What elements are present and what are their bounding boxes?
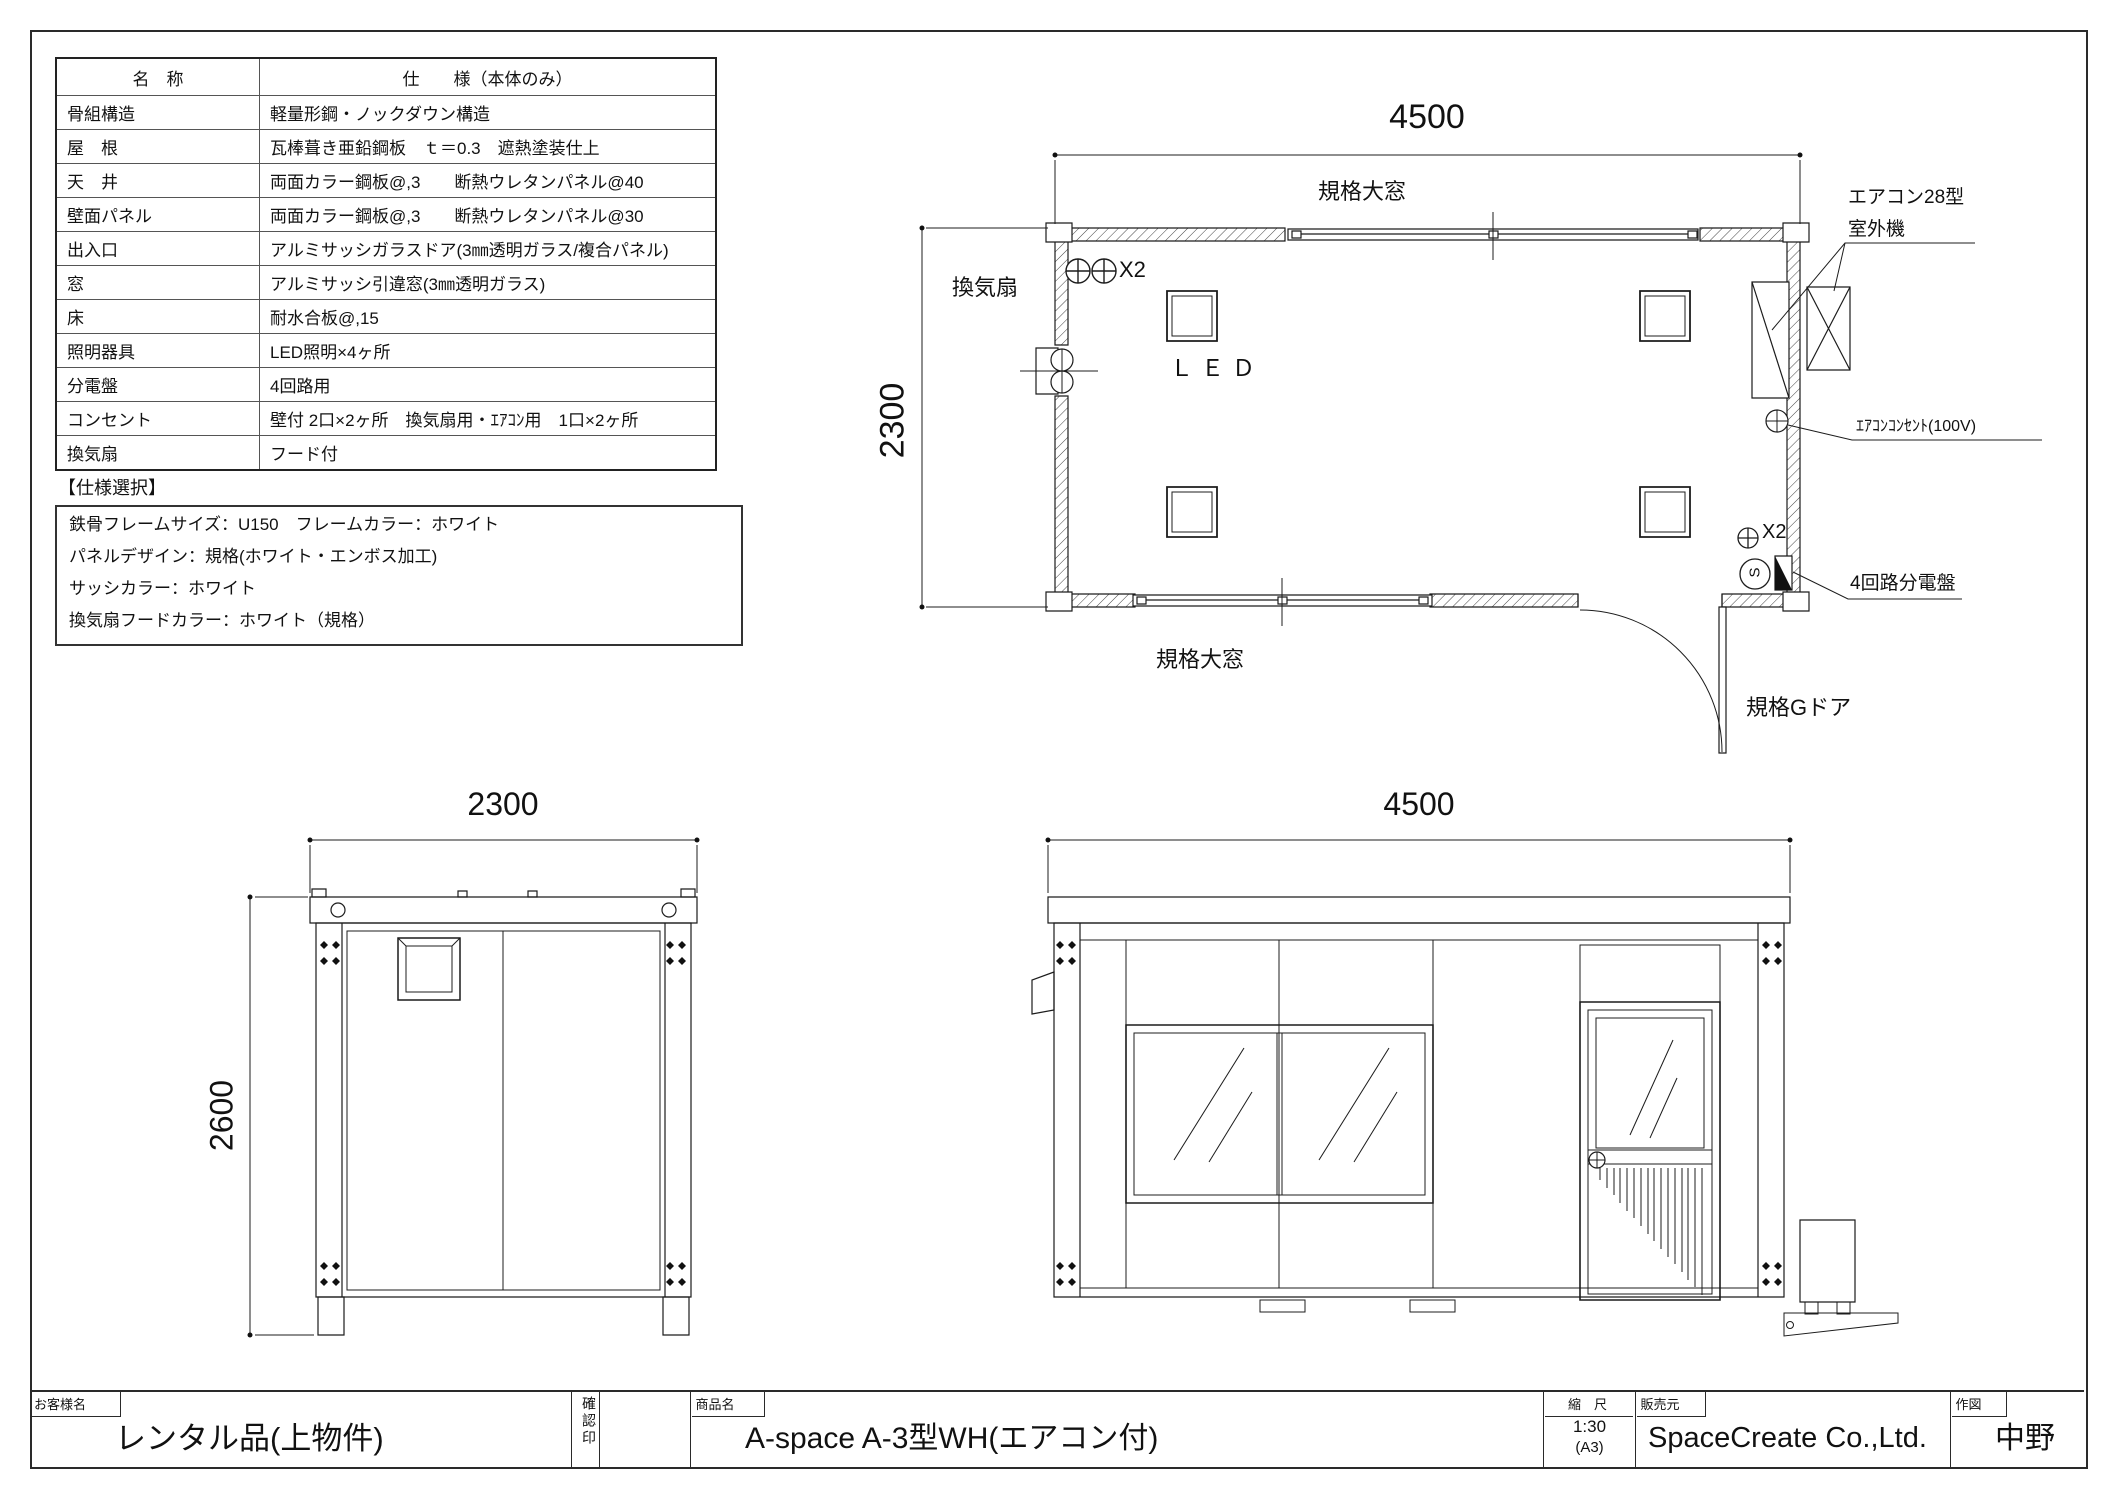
spec-select-line: 鉄骨フレームサイズ：U150 フレームカラー：ホワイト [69, 509, 729, 541]
outdoor-ac-unit [1784, 1220, 1898, 1336]
table-row: 床耐水合板@,15 [56, 300, 716, 334]
spec-table: 名 称 仕 様（本体のみ） 骨組構造軽量形鋼・ノックダウン構造 屋 根瓦棒葺き亜… [55, 57, 717, 471]
end-elevation-dimensions [248, 838, 700, 1338]
vent-hood-side [1032, 972, 1054, 1014]
spec-select-title: 【仕様選択】 [58, 474, 166, 500]
row-name: 屋 根 [56, 130, 260, 164]
drafter-name: 中野 [1975, 1412, 2075, 1465]
title-block: お客様名 レンタル品(上物件) 確認印 商品名 A-space A-3型WH(エ… [30, 1390, 2084, 1467]
aircon-label-line1: エアコン28型 [1848, 182, 1964, 209]
scale-paper: (A3) [1545, 1439, 1635, 1456]
row-name: 出入口 [56, 232, 260, 266]
outlet-x2-bottom-icon [1738, 528, 1758, 548]
row-name: 窓 [56, 266, 260, 300]
row-name: 骨組構造 [56, 96, 260, 130]
outlet-x2-top-icon [1066, 259, 1116, 283]
plan-top-window-label: 規格大窓 [1318, 174, 1406, 206]
vent-fan-symbol [1020, 348, 1098, 394]
plan-x2-bottom-label: X2 [1762, 521, 1786, 544]
end-elevation-width-dim: 2300 [443, 786, 563, 823]
side-elevation-width-dim: 4500 [1339, 786, 1499, 823]
corner-bolts [320, 941, 1782, 1286]
spec-header-name: 名 称 [56, 58, 260, 96]
row-spec: 両面カラー鋼板@,3 断熱ウレタンパネル@30 [260, 198, 717, 232]
side-elevation [1032, 838, 1898, 1337]
spec-select-box: 鉄骨フレームサイズ：U150 フレームカラー：ホワイト パネルデザイン：規格(ホ… [55, 505, 743, 646]
row-name: 分電盤 [56, 368, 260, 402]
scale-value: 1:30 [1545, 1417, 1635, 1437]
plan-vent-fan-label: 換気扇 [952, 270, 1018, 302]
table-row: 骨組構造軽量形鋼・ノックダウン構造 [56, 96, 716, 130]
row-name: 壁面パネル [56, 198, 260, 232]
plan-door [1578, 594, 1726, 753]
led-lights [1167, 291, 1690, 537]
row-spec: 壁付 2口×2ヶ所 換気扇用・ｴｱｺﾝ用 1口×2ヶ所 [260, 402, 717, 436]
plan-door-label: 規格Gドア [1746, 690, 1851, 722]
plan-bottom-window [1133, 578, 1432, 626]
table-row: 出入口アルミサッシガラスドア(3㎜透明ガラス/複合パネル) [56, 232, 716, 266]
row-spec: 耐水合板@,15 [260, 300, 717, 334]
end-elevation [248, 838, 700, 1338]
spec-select-line: サッシカラー：ホワイト [69, 573, 729, 605]
row-spec: 軽量形鋼・ノックダウン構造 [260, 96, 717, 130]
row-name: 照明器具 [56, 334, 260, 368]
table-row: コンセント壁付 2口×2ヶ所 換気扇用・ｴｱｺﾝ用 1口×2ヶ所 [56, 402, 716, 436]
row-spec: 4回路用 [260, 368, 717, 402]
row-spec: フード付 [260, 436, 717, 471]
divider [571, 1392, 572, 1467]
table-row: 壁面パネル両面カラー鋼板@,3 断熱ウレタンパネル@30 [56, 198, 716, 232]
customer-name-label: お客様名 [30, 1392, 121, 1417]
row-name: 換気扇 [56, 436, 260, 471]
customer-name: レンタル品(上物件) [115, 1412, 384, 1465]
plan-height-dim: 2300 [874, 361, 913, 481]
vent-hood-front [398, 938, 460, 1000]
plan-x2-top-label: X2 [1119, 257, 1146, 283]
table-row: 天 井両面カラー鋼板@,3 断熱ウレタンパネル@40 [56, 164, 716, 198]
table-row: 照明器具LED照明×4ヶ所 [56, 334, 716, 368]
table-row: 窓アルミサッシ引違窓(3㎜透明ガラス) [56, 266, 716, 300]
spec-select-line: パネルデザイン：規格(ホワイト・エンボス加工) [69, 541, 729, 573]
plan-top-window [1288, 212, 1698, 260]
product-name: A-space A-3型WH(エアコン付) [745, 1412, 1158, 1465]
table-row: 分電盤4回路用 [56, 368, 716, 402]
aircon-units [1752, 243, 1975, 398]
door-knob-icon [1589, 1152, 1605, 1168]
spec-table-header: 名 称 仕 様（本体のみ） [56, 58, 716, 96]
spec-header-spec: 仕 様（本体のみ） [260, 58, 717, 96]
floor-plan [920, 153, 2043, 754]
row-spec: 両面カラー鋼板@,3 断熱ウレタンパネル@40 [260, 164, 717, 198]
plan-bottom-window-label: 規格大窓 [1156, 642, 1244, 674]
row-spec: LED照明×4ヶ所 [260, 334, 717, 368]
table-row: 屋 根瓦棒葺き亜鉛鋼板 ｔ＝0.3 遮熱塗装仕上 [56, 130, 716, 164]
seller-name: SpaceCreate Co.,Ltd. [1648, 1412, 1927, 1465]
row-name: コンセント [56, 402, 260, 436]
switch-label: S [1747, 563, 1764, 583]
scale-label: 縮 尺 [1545, 1392, 1633, 1417]
divider [599, 1392, 600, 1467]
plan-led-label: ＬＥＤ [1170, 349, 1263, 383]
aircon-label-line2: 室外機 [1848, 214, 1905, 241]
breaker-label: 4回路分電盤 [1850, 568, 1956, 595]
side-elevation-dimensions [1046, 838, 1793, 894]
row-name: 天 井 [56, 164, 260, 198]
row-spec: アルミサッシガラスドア(3㎜透明ガラス/複合パネル) [260, 232, 717, 266]
spec-select-line: 換気扇フードカラー：ホワイト（規格） [69, 605, 729, 637]
plan-walls [1055, 228, 1800, 607]
end-elevation-height-dim: 2600 [204, 1056, 241, 1176]
plan-corner-posts [1046, 223, 1809, 611]
side-door [1580, 945, 1720, 1300]
row-spec: アルミサッシ引違窓(3㎜透明ガラス) [260, 266, 717, 300]
plan-width-dim: 4500 [1347, 98, 1507, 137]
row-spec: 瓦棒葺き亜鉛鋼板 ｔ＝0.3 遮熱塗装仕上 [260, 130, 717, 164]
row-name: 床 [56, 300, 260, 334]
aircon-outlet-label: ｴｱｺﾝｺﾝｾﾝﾄ(100V) [1856, 412, 1976, 436]
table-row: 換気扇フード付 [56, 436, 716, 471]
approval-stamp-label: 確認印 [573, 1396, 599, 1466]
